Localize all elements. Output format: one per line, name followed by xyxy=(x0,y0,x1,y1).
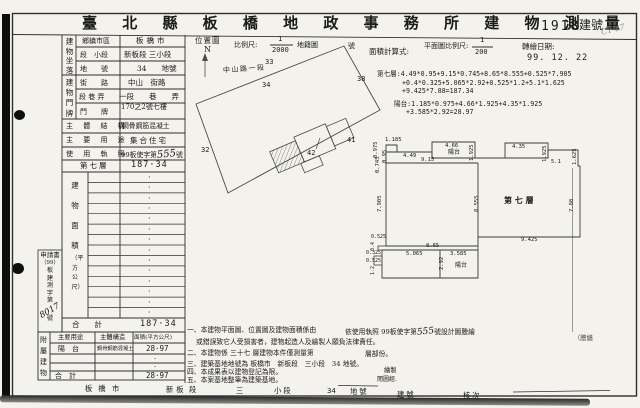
license-prefix: 99板使字第 xyxy=(121,151,157,159)
dim-0525a: 0.525 xyxy=(371,235,386,240)
lane-value: 一段 巷 弄 xyxy=(119,93,179,101)
note-1-right: 依使用執照 99板使字第555號設計圖謄繪 xyxy=(345,328,475,337)
parcel-38: 38 xyxy=(357,76,365,83)
use-label: 主 要 用 途 xyxy=(66,137,129,144)
transcribe-date-label: 轉繪日期: xyxy=(522,43,555,51)
transcribe-date-value: 99. 12. 22 xyxy=(527,54,588,63)
application-year: （99） xyxy=(41,261,59,267)
door-label: 門 牌 xyxy=(80,109,108,116)
annex-row-area: 28·97 xyxy=(146,345,169,353)
footer-city: 板橋 xyxy=(85,385,112,392)
area-side-unit: （平方公尺） xyxy=(72,254,79,292)
dim-788: 7.88 xyxy=(570,199,576,212)
dim-095: 0.95 xyxy=(383,150,389,163)
footer-subsection-suffix: 小段 xyxy=(274,387,293,394)
license-label: 使 用 執 照 xyxy=(66,151,129,158)
area-formula-label: 面積計算式: xyxy=(369,48,409,56)
empty-row-dot: · xyxy=(148,257,151,265)
area-side-label: 建物面積 xyxy=(70,176,80,256)
parcel-32: 32 xyxy=(201,147,209,154)
empty-row-dot: · xyxy=(148,195,151,203)
section-label: 段 小段 xyxy=(80,52,108,59)
floor-label: 第七層 xyxy=(80,162,109,170)
footer-section-suffix: 段 xyxy=(189,386,196,393)
dim-3585: 3.585 xyxy=(450,252,467,258)
dim-0745: 0.745 xyxy=(376,156,382,173)
district-label: 鄉鎮市區 xyxy=(82,38,110,45)
empty-row-dot: · xyxy=(148,299,151,307)
dim-9425: 9.425 xyxy=(521,238,538,244)
area-total-label: 合 計 xyxy=(72,321,102,329)
footer-city-suffix: 市 xyxy=(112,385,119,392)
door-value: 170之2號七樓 xyxy=(121,104,167,111)
annex-row-use: 陽 台 xyxy=(58,346,79,353)
footer-lot: 34 xyxy=(327,387,336,394)
dim-865: 8.65 xyxy=(426,244,439,250)
formula-floor-line2: +0.4*0.325+5.065*2.92+0.525*1.2+5.1*1.62… xyxy=(402,80,565,87)
note-6: 五、本案基地整筆為建築基地。 xyxy=(187,377,282,384)
lot-value: 34 地號 xyxy=(137,65,177,73)
empty-row-dot: · xyxy=(148,236,151,244)
footer-lot-suffix: 地號 xyxy=(350,388,369,395)
parcel-42: 42 xyxy=(307,150,315,157)
footer-bno-suffix: 建號 xyxy=(397,391,416,398)
license-value: 99板使字第555號 xyxy=(121,150,183,160)
dim-1185: 1.185 xyxy=(385,138,402,144)
sig-review-label: 閱圖經. xyxy=(377,377,397,383)
application-title: 申請書 xyxy=(40,252,60,259)
empty-row-dot: · xyxy=(148,267,151,275)
group-label-location: 建物坐落 xyxy=(65,37,75,75)
dim-51: 5.1 xyxy=(551,160,561,166)
dim-915: 9.15 xyxy=(421,158,434,164)
dim-0525b: 0.525 xyxy=(366,259,381,264)
floor-area-value: 187·34 xyxy=(131,161,168,170)
note-1-license-handwritten: 555 xyxy=(417,327,435,338)
annex-col-area: 面積(平方公尺) xyxy=(134,336,172,342)
lot-label: 地 號 xyxy=(80,66,108,73)
dim-1925a: 1.925 xyxy=(470,144,476,161)
sig-draft-label: 繪製 xyxy=(384,368,397,374)
footer-check-label: 核次 xyxy=(463,392,482,399)
dim-449: 4.49 xyxy=(403,154,416,160)
empty-row-dot: · xyxy=(148,205,151,213)
structure-value: 鋼骨鋼筋混凝土 xyxy=(122,123,170,130)
dim-1625: 1.625 xyxy=(573,148,579,165)
dim-435: 4.35 xyxy=(512,145,525,151)
annex-empty-dot: · xyxy=(154,364,156,371)
group-label-door: 建物門牌 xyxy=(65,78,75,119)
scanned-survey-document: 臺 北 縣 板 橋 地 政 事 務 所 建 物 測 量 成 果 圖 1918 建… xyxy=(0,0,640,408)
empty-row-dot: · xyxy=(148,278,151,286)
annex-col-structure: 主體構造 xyxy=(100,335,125,341)
building-number: 1918 xyxy=(541,20,580,33)
annex-row-structure: 鋼骨鋼筋混凝土 xyxy=(97,347,133,352)
lane-label: 段 巷 弄 xyxy=(79,94,104,101)
formula-balcony-line1: 陽台:1.185*0.975+4.66*1.925+4.35*1.925 xyxy=(394,101,542,108)
annex-total-value: 28·97 xyxy=(146,372,169,380)
dim-12: 1.2 xyxy=(371,266,376,275)
footer-subsection: 三 xyxy=(236,387,243,394)
dim-5065: 5.065 xyxy=(406,252,423,258)
empty-row-dot: · xyxy=(148,226,151,234)
annex-col-use: 主要用途 xyxy=(58,335,83,341)
note-1-tail: （謄繕 xyxy=(574,336,593,342)
formula-floor-line1: 第七層:4.49*0.95+9.15*0.745+8.65*8.555+0.52… xyxy=(377,71,571,78)
balcony-bottom-label: 陽台 xyxy=(455,263,467,269)
dim-7905: 7.905 xyxy=(378,195,384,212)
note-2: 或錯誤致它人受損害者，建物起造人及繪製人願負法律責任。 xyxy=(196,339,380,346)
empty-row-dot: · xyxy=(148,247,151,255)
balcony-top-label: 陽台 xyxy=(448,150,460,156)
license-suffix: 號 xyxy=(176,151,183,159)
empty-row-dot: · xyxy=(148,174,151,182)
application-docword: 板建測字第 xyxy=(46,267,54,305)
use-value: 集合住宅 xyxy=(130,137,168,145)
note-1c: 號設計圖謄繪 xyxy=(434,328,475,336)
note-5: 四、本成果表以建物登記為限。 xyxy=(187,369,282,376)
note-1: 一、本建物平面圖、位置圖及建物面積係由 xyxy=(187,327,316,334)
empty-row-dot: · xyxy=(148,184,151,192)
street-value: 中山 街路 xyxy=(128,79,166,87)
street-label: 街 路 xyxy=(80,80,108,87)
dim-0325: 0.325 xyxy=(366,251,381,256)
note-4: 三、建築基地地號為 板橋市 新板段 三小段 34 地號。 xyxy=(187,361,363,368)
parcel-41: 41 xyxy=(347,137,355,144)
annex-empty-dot: · xyxy=(154,356,156,363)
structure-label: 主 體 結 構 xyxy=(66,123,129,130)
parcel-33: 33 xyxy=(265,59,273,66)
note-3b: 層部份。 xyxy=(365,351,392,358)
dim-292: 2.92 xyxy=(440,257,446,270)
formula-floor-line3: +9.425*7.88=187.34 xyxy=(402,88,473,95)
district-value: 板橋市 xyxy=(136,37,168,45)
dim-8555: 8.555 xyxy=(475,195,481,212)
note-3: 二、本建物係 三十七 層建物本件僅測量第 xyxy=(187,350,314,357)
plan-room-label: 第 七 層 xyxy=(504,196,534,204)
formula-balcony-line2: +3.585*2.92=28.97 xyxy=(406,109,474,116)
note-1b: 依使用執照 99板使字第 xyxy=(345,328,417,336)
footer-section: 新板 xyxy=(166,386,187,393)
building-number-label: 建號 xyxy=(579,19,603,31)
empty-row-dot: · xyxy=(148,309,151,317)
annex-total-label: 合 計 xyxy=(55,373,76,380)
area-total-value: 187·34 xyxy=(140,320,177,329)
plan-scale-label: 平面圖比例尺: xyxy=(424,43,468,50)
plan-scale-numerator: 1 xyxy=(480,37,484,44)
annex-side-label: 附屬建物 xyxy=(39,335,48,379)
section-value: 新板段 三小段 xyxy=(124,51,171,59)
empty-row-dot: · xyxy=(148,215,151,223)
plan-scale-denominator: 200 xyxy=(475,49,488,56)
empty-row-dot: · xyxy=(148,288,151,296)
parcel-34: 34 xyxy=(262,82,270,89)
application-box: 申請書 （99） 板建測字第 8017 號 xyxy=(38,252,62,332)
dim-1925b: 1.925 xyxy=(543,145,549,162)
